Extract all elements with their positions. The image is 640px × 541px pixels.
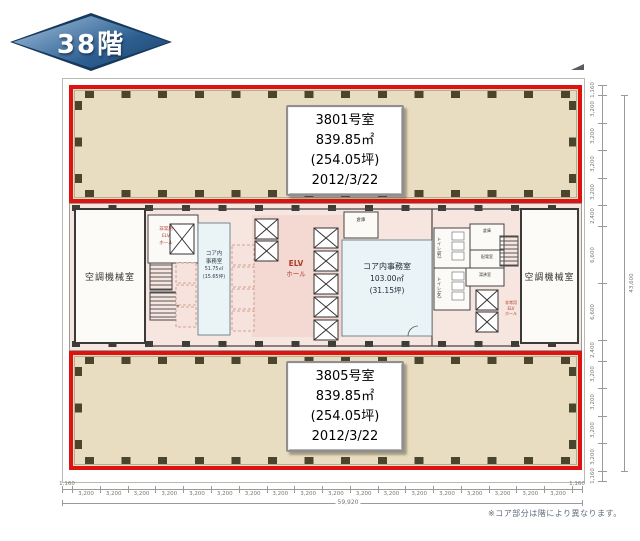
hot-water-room-label: 湯沸室 [466,272,504,278]
column-marks [75,92,82,196]
emergency-elv-right-label: 非常用 ELV ホール [500,300,522,317]
column-marks [569,358,576,463]
unit-date: 2012/3/22 [312,427,379,447]
storage-center-label: 倉庫 [344,217,378,223]
column-marks [76,91,575,98]
dimension-chain-right: 1,1603,2003,2003,2003,2002,4006,6006,600… [588,85,640,481]
electrical-room-label: 配電室 [470,254,504,260]
core-office-center-label: コア内事務室 103.00㎡ (31.15坪) [342,261,432,297]
emergency-elv-left-label: 非常用 ELV ホール [147,226,185,247]
unit-area-m2: 839.85㎡ [316,387,375,407]
unit-date: 2012/3/22 [312,171,379,191]
north-arrow-mark [571,64,584,70]
unit-3801-infobox: 3801号室 839.85㎡ (254.05坪) 2012/3/22 [286,105,404,196]
storage-room-center [344,212,378,238]
dimension-chain-bottom: 1,1603,2003,2003,2003,2003,2003,2003,200… [62,481,582,511]
floor-plan-page: 38階 空調機械室 空調機械室 [0,0,640,541]
toilet-men-label: トイレ(男) [435,230,441,266]
unit-area-tsubo: (254.05坪) [311,151,380,171]
emergency-elevator-icons-right [476,290,498,332]
unit-area-tsubo: (254.05坪) [311,407,380,427]
core-office-left-label: コア内 事務室 51.75㎡ (15.65坪) [197,250,231,282]
column-marks [76,457,575,464]
unit-3805-infobox: 3805号室 839.85㎡ (254.05坪) 2012/3/22 [286,361,404,452]
machine-room-left: 空調機械室 [74,208,146,344]
stairs-icon [150,263,172,290]
machine-room-right: 空調機械室 [520,208,579,344]
core-note: ※コア部分は階により異なります。 [488,508,622,519]
unit-area-m2: 839.85㎡ [316,131,375,151]
elv-hall-label: ELV ホール [279,259,313,279]
column-marks [569,92,576,196]
storage-right-label: 倉庫 [470,228,504,234]
machine-room-right-label: 空調機械室 [524,270,574,283]
column-marks [75,358,82,463]
machine-room-left-label: 空調機械室 [85,270,135,283]
toilet-women-label: トイレ(女) [435,269,441,307]
unit-name: 3805号室 [315,367,374,387]
stairs-icon [500,236,518,266]
unit-name: 3801号室 [315,111,374,131]
floor-badge: 38階 [10,13,172,71]
floor-badge-label: 38階 [10,13,172,71]
stairs-icon [150,292,178,320]
